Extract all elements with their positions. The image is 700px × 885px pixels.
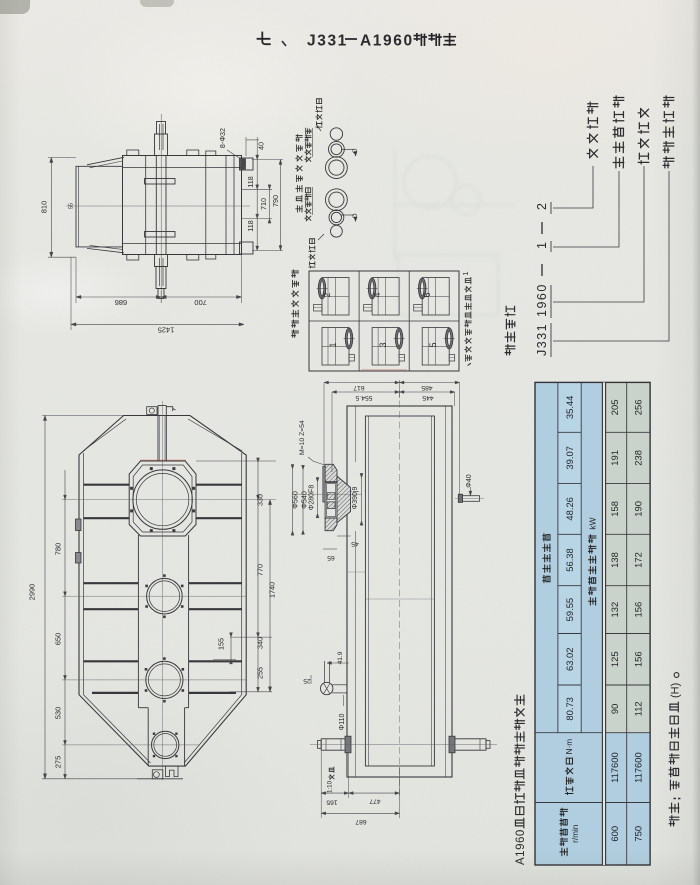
svg-text:N·m: N·m (565, 739, 574, 755)
svg-text:117600: 117600 (609, 752, 620, 783)
svg-text:1960: 1960 (535, 283, 549, 317)
svg-text:4: 4 (372, 292, 382, 297)
svg-text:45: 45 (351, 540, 359, 547)
svg-text:(H): (H) (670, 683, 682, 698)
svg-text:165: 165 (326, 799, 338, 806)
svg-text:330: 330 (256, 494, 265, 506)
svg-text:Φ110: Φ110 (339, 714, 346, 731)
svg-text:118: 118 (246, 220, 255, 231)
svg-text:190: 190 (633, 501, 644, 517)
svg-text:2990: 2990 (28, 584, 37, 601)
svg-text:530: 530 (54, 707, 63, 720)
svg-text:2: 2 (322, 292, 332, 297)
svg-text:56.38: 56.38 (564, 548, 575, 571)
svg-text:600: 600 (609, 826, 620, 842)
svg-text:r/min: r/min (571, 824, 580, 843)
svg-text:2: 2 (535, 203, 549, 210)
svg-text:1: 1 (328, 342, 338, 347)
svg-text:485: 485 (421, 384, 433, 391)
svg-text:275: 275 (54, 756, 63, 769)
svg-text:J331: J331 (535, 323, 549, 356)
svg-text:A1960: A1960 (515, 829, 527, 865)
svg-text:J331: J331 (307, 33, 348, 50)
svg-text:687: 687 (355, 818, 367, 825)
svg-text:kW: kW (588, 517, 598, 529)
svg-text:55: 55 (69, 203, 75, 209)
svg-text:156: 156 (633, 602, 644, 618)
svg-text:90: 90 (609, 704, 620, 714)
svg-text:40: 40 (257, 142, 266, 150)
svg-text:Φ540: Φ540 (300, 491, 309, 509)
svg-text:Φ390ј9: Φ390ј9 (352, 487, 359, 510)
svg-text:Φ280F8: Φ280F8 (309, 485, 316, 511)
svg-text:8-Φ32: 8-Φ32 (218, 128, 227, 148)
svg-text:1425: 1425 (158, 326, 175, 335)
svg-text:48.26: 48.26 (564, 497, 575, 520)
svg-text:25: 25 (303, 677, 311, 684)
svg-text:80.73: 80.73 (564, 697, 575, 720)
svg-text:700: 700 (194, 298, 207, 307)
svg-text:65: 65 (327, 554, 335, 561)
svg-text:445: 445 (422, 394, 434, 401)
svg-text:710: 710 (259, 198, 268, 210)
svg-text:1:10: 1:10 (327, 780, 334, 793)
svg-text:63.02: 63.02 (564, 648, 575, 671)
svg-text:3: 3 (378, 342, 388, 347)
svg-text:O: O (352, 213, 359, 218)
svg-text:1: 1 (535, 242, 549, 249)
svg-text:1: 1 (461, 271, 470, 275)
svg-text:112: 112 (633, 701, 644, 716)
svg-text:A1960: A1960 (360, 33, 414, 50)
svg-text:256: 256 (633, 400, 644, 416)
svg-text:686: 686 (115, 298, 128, 307)
svg-text:125: 125 (609, 651, 620, 667)
svg-text:554.5: 554.5 (355, 394, 372, 401)
svg-text:5: 5 (428, 342, 438, 347)
svg-text:810: 810 (40, 201, 49, 214)
svg-text:138: 138 (609, 552, 620, 568)
svg-text:Φ560: Φ560 (291, 491, 300, 509)
svg-text:59.55: 59.55 (564, 598, 575, 621)
svg-text:118: 118 (246, 176, 255, 187)
svg-text:M=10 Z=54: M=10 Z=54 (299, 420, 306, 455)
svg-text:158: 158 (609, 501, 620, 517)
svg-text:238: 238 (633, 450, 644, 466)
svg-text:O: O (352, 148, 359, 153)
svg-text:205: 205 (609, 400, 620, 416)
svg-text:132: 132 (609, 602, 620, 618)
svg-text:117600: 117600 (633, 752, 644, 783)
svg-text:156: 156 (633, 651, 644, 667)
svg-text:172: 172 (633, 552, 644, 568)
svg-text:340: 340 (256, 637, 265, 649)
svg-text:255: 255 (256, 667, 265, 679)
svg-text:617: 617 (353, 384, 365, 391)
svg-text:39.07: 39.07 (564, 446, 575, 469)
svg-text:770: 770 (256, 564, 265, 576)
svg-text:191: 191 (609, 450, 620, 466)
svg-text:780: 780 (54, 543, 63, 556)
svg-text:155: 155 (217, 638, 226, 650)
svg-text:790: 790 (271, 195, 280, 207)
svg-text:750: 750 (633, 826, 644, 842)
svg-text:650: 650 (54, 633, 63, 646)
svg-text:Φ40: Φ40 (466, 474, 473, 487)
svg-text:41.9: 41.9 (337, 651, 344, 664)
svg-text:477: 477 (369, 798, 381, 805)
svg-text:6: 6 (422, 292, 432, 297)
svg-text:35.44: 35.44 (564, 396, 575, 419)
svg-text:1740: 1740 (268, 582, 277, 598)
